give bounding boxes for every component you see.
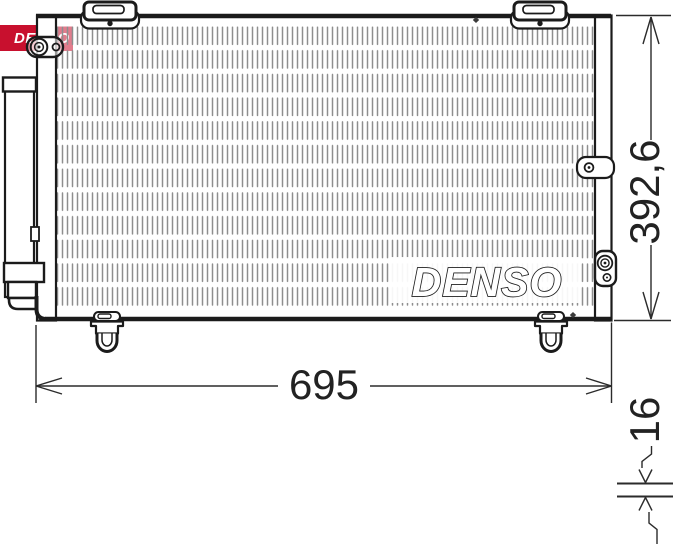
receiver-clamp — [31, 227, 39, 241]
technical-drawing-page: DENSO DENSO — [0, 0, 677, 546]
side-mount-tab — [577, 157, 614, 178]
bracket-hole — [537, 21, 542, 26]
top-bracket-right — [511, 2, 569, 29]
arrowhead-down — [639, 470, 652, 483]
bottom-pin-left — [91, 312, 123, 352]
receiver-top-bracket — [3, 78, 36, 92]
bracket-hole — [107, 21, 112, 26]
arrowhead-up — [639, 498, 652, 511]
condenser-technical-drawing: DENSO — [0, 0, 677, 546]
bracket-slot — [523, 6, 554, 14]
dim-depth-label: 16 — [621, 397, 668, 444]
dim-width-label: 695 — [289, 361, 359, 408]
bracket-slot — [93, 6, 124, 14]
receiver-bottom-bracket — [4, 263, 44, 282]
dimension-width: 695 — [36, 323, 612, 409]
watermark-text: DENSO — [412, 259, 563, 305]
top-bracket-left — [81, 2, 139, 29]
dimension-height: 392,6 — [614, 16, 671, 321]
bottom-plate — [44, 311, 596, 318]
leader-top — [642, 446, 652, 468]
bottom-pin-right — [535, 312, 567, 352]
inlet-fitting — [27, 37, 63, 57]
outlet-fitting — [595, 251, 616, 286]
receiver-bottom-cap — [9, 298, 36, 309]
leader-bottom — [649, 512, 657, 544]
dimension-depth: 16 — [617, 397, 673, 544]
denso-watermark: DENSO — [391, 257, 581, 305]
dim-height-label: 392,6 — [621, 139, 668, 244]
